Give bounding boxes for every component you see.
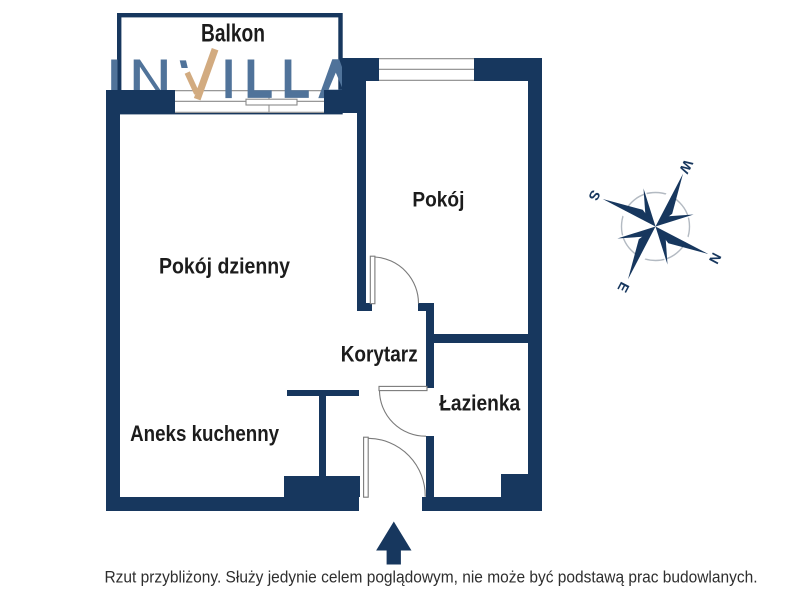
svg-text:Pokój dzienny: Pokój dzienny [159, 254, 291, 279]
svg-text:Rzut przybliżony. Służy jedyni: Rzut przybliżony. Służy jedynie celem po… [105, 568, 758, 586]
svg-text:Aneks kuchenny: Aneks kuchenny [130, 421, 280, 446]
svg-text:Łazienka: Łazienka [439, 391, 521, 416]
svg-text:Korytarz: Korytarz [341, 342, 418, 367]
svg-text:Balkon: Balkon [201, 21, 265, 48]
svg-text:Pokój: Pokój [412, 186, 464, 211]
